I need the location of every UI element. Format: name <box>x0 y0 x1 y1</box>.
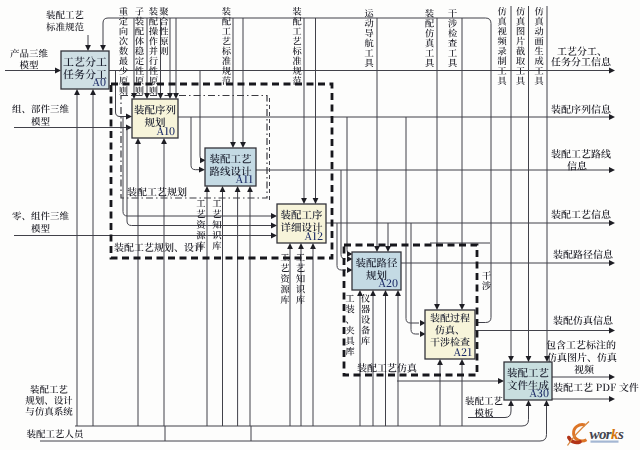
svg-text:works: works <box>590 426 624 442</box>
